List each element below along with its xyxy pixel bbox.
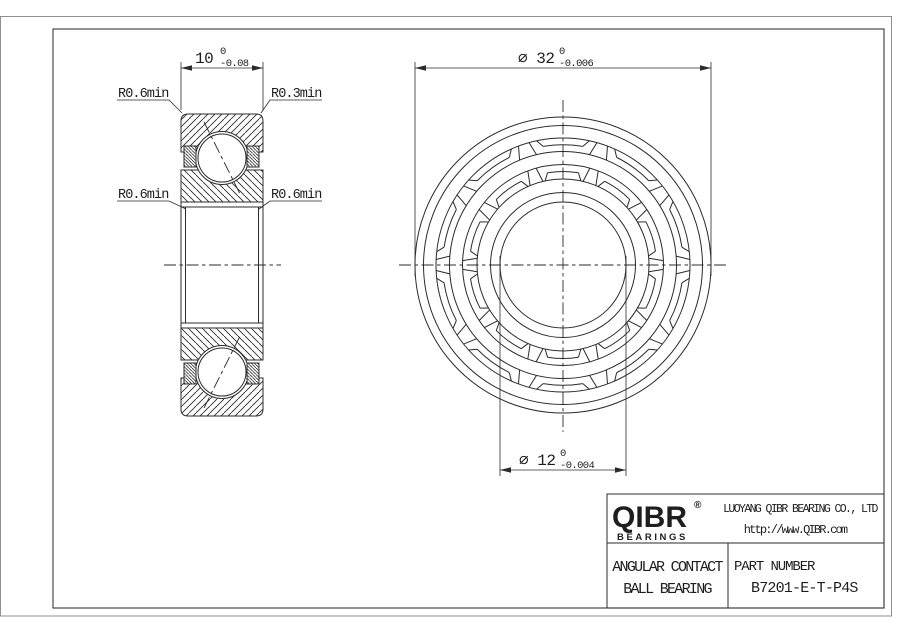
arrowhead-right bbox=[615, 467, 626, 473]
part-number-value: B7201-E-T-P4S bbox=[751, 580, 858, 597]
inner-border bbox=[53, 29, 884, 608]
front-view bbox=[399, 100, 728, 432]
od-value: ⌀ 32 bbox=[518, 50, 554, 68]
drawing-sheet: 10 0 -0.08 ⌀ 32 0 -0.006 ⌀ 12 0 -0.004 R… bbox=[0, 0, 900, 636]
bore-value: ⌀ 12 bbox=[519, 452, 555, 470]
section-view bbox=[164, 114, 281, 416]
dimension-width: 10 0 -0.08 bbox=[181, 46, 263, 110]
bore-tol-upper: 0 bbox=[560, 448, 566, 460]
width-tol-lower: -0.08 bbox=[220, 58, 249, 70]
od-tol-lower: -0.006 bbox=[559, 58, 594, 70]
part-number-label: PART NUMBER bbox=[734, 559, 816, 575]
cage-section-bottom-right bbox=[247, 363, 259, 384]
bore-tol-lower: -0.004 bbox=[560, 460, 595, 472]
logo-text: QIBR bbox=[612, 501, 687, 534]
width-tol-upper: 0 bbox=[220, 46, 226, 58]
bore-chamfer-band-top bbox=[181, 202, 263, 207]
company-website: http://www.QIBR.com bbox=[744, 523, 848, 537]
qibr-logo: QIBR ® BEARINGS bbox=[612, 500, 702, 543]
logo-subtext: BEARINGS bbox=[617, 532, 688, 543]
arrowhead-left bbox=[415, 65, 426, 71]
arrowhead-left bbox=[181, 65, 192, 71]
arrowhead-right bbox=[252, 65, 263, 71]
arrowhead-right bbox=[700, 65, 711, 71]
bore-chamfer-band-bottom bbox=[181, 323, 263, 328]
bearing-engineering-drawing: 10 0 -0.08 ⌀ 32 0 -0.006 ⌀ 12 0 -0.004 R… bbox=[0, 0, 900, 636]
arrowhead-left bbox=[500, 467, 511, 473]
title-block: QIBR ® BEARINGS LUOYANG QIBR BEARING CO.… bbox=[607, 494, 884, 608]
od-tol-upper: 0 bbox=[559, 46, 565, 58]
width-value: 10 bbox=[195, 50, 213, 68]
cage-section-top-right bbox=[247, 146, 259, 167]
product-type-line2: BALL BEARING bbox=[623, 581, 712, 598]
company-name: LUOYANG QIBR BEARING CO., LTD bbox=[723, 503, 878, 516]
cage-section-bottom-left bbox=[184, 363, 196, 384]
registered-mark: ® bbox=[694, 500, 702, 511]
cage-section-top-left bbox=[184, 146, 196, 167]
product-type-line1: ANGULAR CONTACT bbox=[612, 559, 723, 576]
